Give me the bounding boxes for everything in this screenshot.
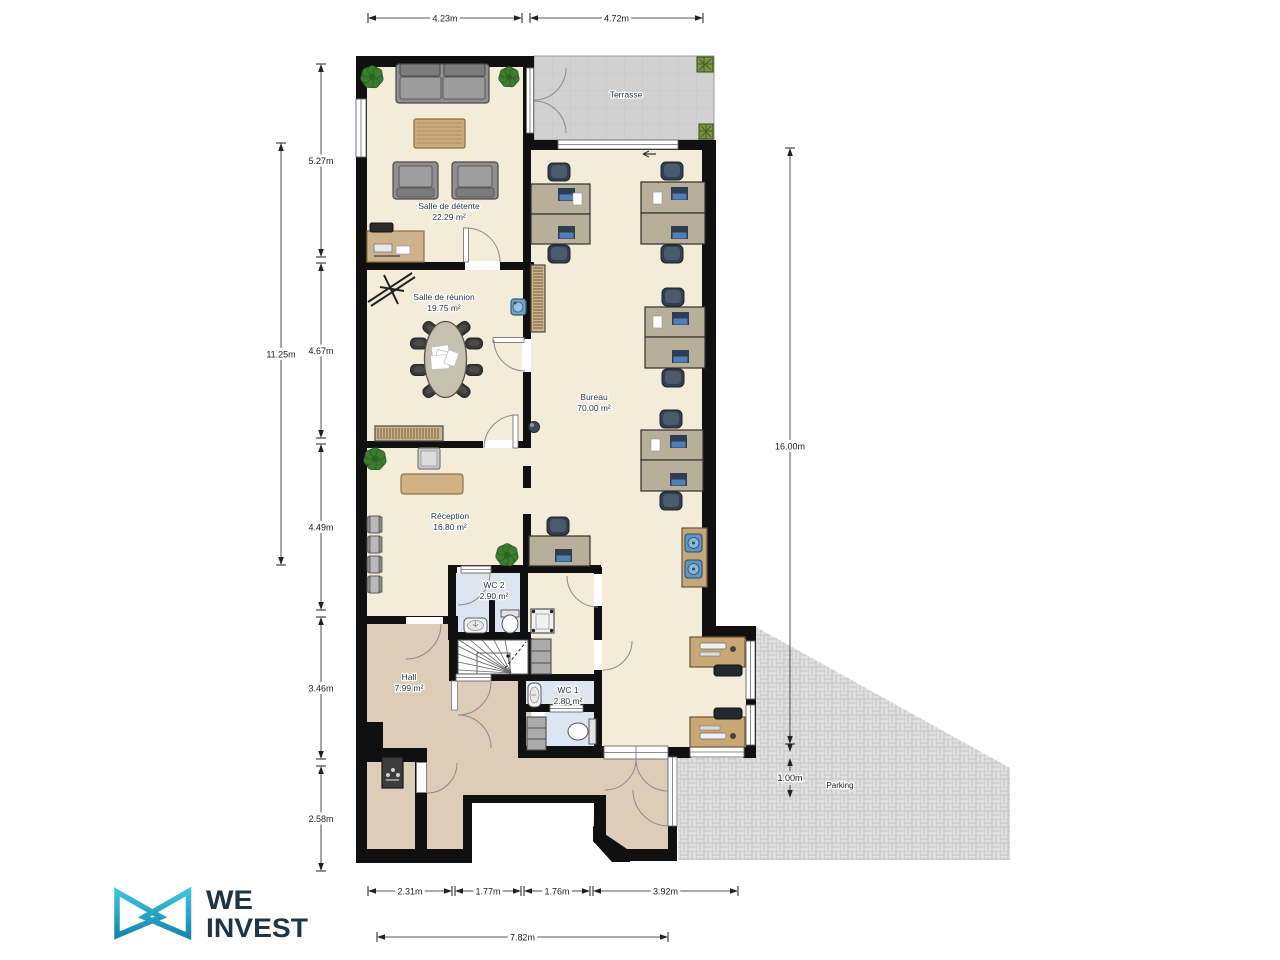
svg-text:Bureau: Bureau bbox=[580, 392, 608, 402]
svg-text:70.00 m²: 70.00 m² bbox=[577, 403, 611, 413]
svg-text:INVEST: INVEST bbox=[206, 913, 309, 943]
svg-text:4.23m: 4.23m bbox=[432, 14, 457, 24]
svg-text:7.82m: 7.82m bbox=[510, 933, 535, 943]
svg-text:11.25m: 11.25m bbox=[266, 350, 295, 360]
svg-text:Salle de détente: Salle de détente bbox=[418, 201, 480, 211]
svg-text:5.27m: 5.27m bbox=[308, 156, 333, 166]
svg-text:1.00m: 1.00m bbox=[777, 773, 802, 783]
svg-text:Hall: Hall bbox=[402, 672, 417, 682]
svg-text:16.80 m²: 16.80 m² bbox=[433, 522, 467, 532]
svg-text:19.75 m²: 19.75 m² bbox=[427, 303, 461, 313]
svg-text:1.77m: 1.77m bbox=[475, 887, 500, 897]
svg-text:Parking: Parking bbox=[826, 781, 853, 790]
svg-text:WC 1: WC 1 bbox=[557, 685, 579, 695]
svg-text:Terrasse: Terrasse bbox=[610, 90, 643, 100]
svg-text:2.90 m²: 2.90 m² bbox=[480, 591, 509, 601]
svg-text:WE: WE bbox=[206, 885, 253, 915]
svg-text:4.49m: 4.49m bbox=[308, 523, 333, 533]
svg-text:7.99 m²: 7.99 m² bbox=[395, 683, 424, 693]
svg-text:22.29 m²: 22.29 m² bbox=[432, 212, 466, 222]
svg-text:3.92m: 3.92m bbox=[653, 887, 678, 897]
svg-text:16.00m: 16.00m bbox=[775, 442, 805, 452]
svg-text:3.46m: 3.46m bbox=[308, 684, 333, 694]
svg-text:WC 2: WC 2 bbox=[483, 580, 505, 590]
svg-text:Réception: Réception bbox=[431, 511, 470, 521]
svg-text:2.58m: 2.58m bbox=[308, 814, 333, 824]
svg-text:1.76m: 1.76m bbox=[544, 887, 569, 897]
svg-text:2.31m: 2.31m bbox=[397, 887, 422, 897]
svg-text:4.72m: 4.72m bbox=[604, 14, 629, 24]
svg-text:2.80 m²: 2.80 m² bbox=[554, 696, 583, 706]
svg-text:4.67m: 4.67m bbox=[308, 346, 333, 356]
svg-text:Salle de réunion: Salle de réunion bbox=[413, 292, 475, 302]
